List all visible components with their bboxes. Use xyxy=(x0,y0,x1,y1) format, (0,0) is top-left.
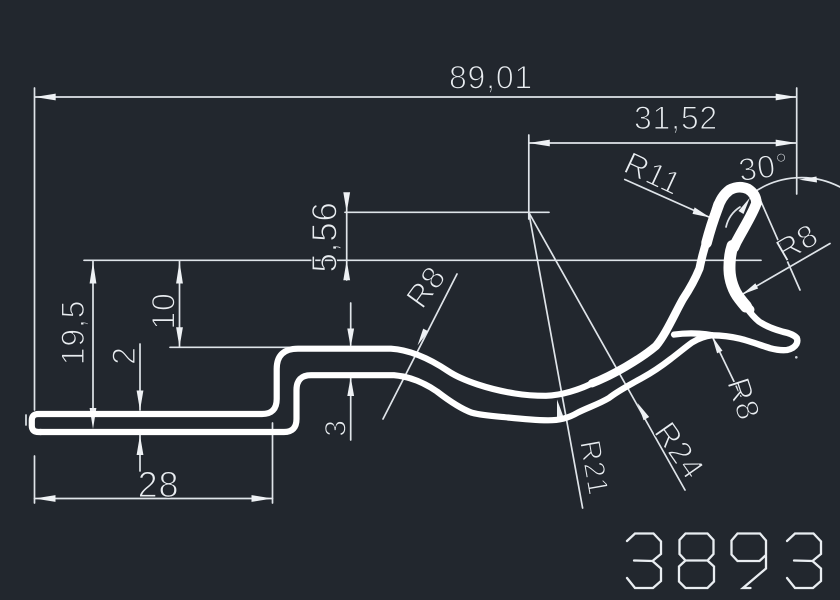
svg-text:2: 2 xyxy=(106,346,142,365)
svg-text:10: 10 xyxy=(146,292,182,329)
svg-text:19,5: 19,5 xyxy=(55,300,91,365)
svg-text:28: 28 xyxy=(138,464,180,505)
svg-text:3: 3 xyxy=(320,419,353,437)
svg-text:30°: 30° xyxy=(736,146,791,189)
svg-text:89,01: 89,01 xyxy=(449,60,533,96)
svg-text:5,56: 5,56 xyxy=(305,201,344,272)
svg-text:31,52: 31,52 xyxy=(634,100,718,136)
